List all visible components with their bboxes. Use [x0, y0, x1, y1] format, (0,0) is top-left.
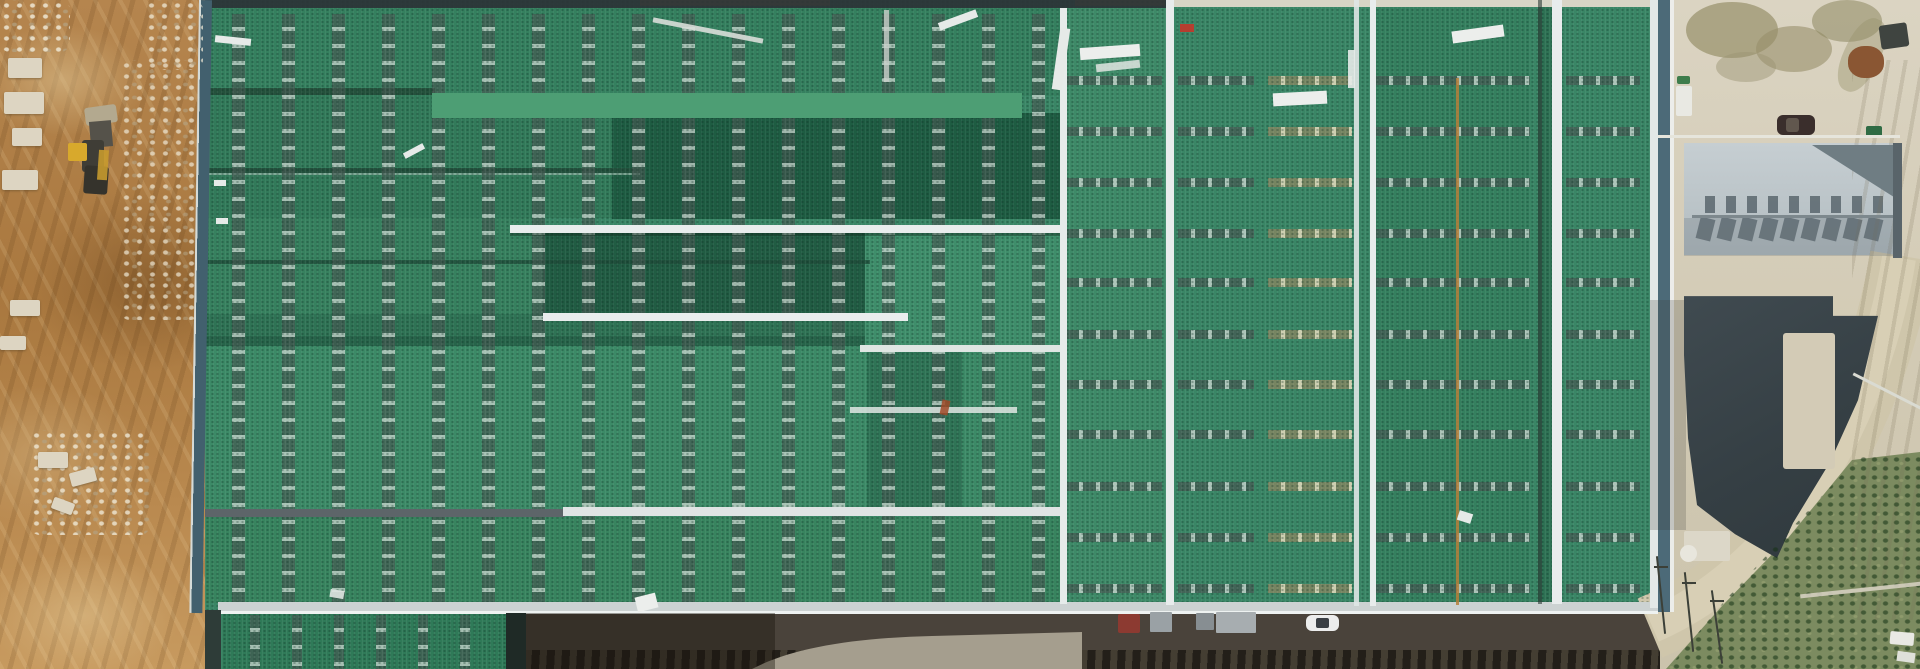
roof-monitor-shadow: [1759, 217, 1779, 242]
concrete-pad: [1684, 531, 1730, 561]
roof-monitor: [1852, 196, 1862, 213]
roof-gray-bar: [205, 509, 565, 517]
cargo-truck-red: [1118, 614, 1140, 633]
utility-pole: [1656, 556, 1666, 634]
pallet-stack: [1196, 613, 1214, 630]
stone-block: [69, 467, 98, 487]
debris-sheet: [1457, 510, 1473, 524]
stone-block: [2, 170, 38, 190]
roof-eave-top-light: [1167, 0, 1655, 7]
roof-seam-vertical: [1370, 0, 1376, 606]
equipment-dark: [1878, 22, 1909, 50]
aerial-photo: [0, 0, 1920, 669]
debris-plank: [403, 143, 425, 159]
rust-pile: [1848, 46, 1884, 78]
debris-plank: [1273, 91, 1328, 107]
gray-roof-ridge: [1692, 215, 1894, 218]
car-white-windshield: [1316, 618, 1329, 628]
roof-step-white: [860, 345, 1063, 352]
debris-plank: [1080, 44, 1141, 60]
roof-monitor-shadow: [1738, 217, 1758, 242]
roof-details-layer: [0, 0, 1920, 669]
building-left-edge-lower: [205, 610, 221, 669]
utility-box-white: [1676, 86, 1692, 116]
roof-monitor-shadow: [1717, 217, 1737, 242]
roof-monitor-shadow: [1864, 217, 1884, 242]
courtyard-concrete: [1783, 333, 1835, 469]
roof-white-bar: [563, 507, 1062, 516]
roof-monitor: [1810, 196, 1820, 213]
roof-monitor-shadow: [1843, 217, 1863, 242]
utility-pole: [1711, 590, 1723, 664]
roof-seam-vertical: [1166, 0, 1174, 605]
roof-monitor: [1747, 196, 1757, 213]
building-left-edge: [189, 0, 212, 613]
roof-monitor-shadow: [1822, 217, 1842, 242]
excavator-arm: [89, 120, 113, 148]
roof-monitor-shadow: [1780, 217, 1800, 242]
debris-sheet: [634, 593, 658, 613]
car-white: [1306, 615, 1339, 631]
debris-plank: [1451, 24, 1504, 43]
roof-walkway: [543, 313, 908, 321]
vegetation-texture: [1660, 455, 1920, 669]
roof-step-white: [850, 407, 1017, 413]
roof-walkway: [510, 225, 1063, 233]
roof-seam-vertical: [1354, 0, 1359, 606]
pipe-rail: [1800, 582, 1920, 599]
car-dark-roof: [1786, 118, 1799, 132]
roof-eave-walkway: [218, 602, 1658, 613]
railing: [1853, 372, 1920, 410]
roof-monitor: [1768, 196, 1778, 213]
roof-eave-top-dark: [205, 0, 1167, 8]
dumpster-green: [1677, 76, 1690, 84]
gray-building-right-wall: [1893, 143, 1902, 258]
building-right-edge: [1658, 0, 1670, 612]
debris-plank: [1052, 28, 1071, 91]
debris-plank: [1096, 60, 1141, 73]
debris-sheet: [329, 589, 344, 599]
roof-walkway-shadow: [510, 233, 1063, 236]
debris-plank: [884, 10, 889, 82]
stone-block: [38, 452, 68, 468]
stone-block: [0, 336, 26, 350]
gray-roof-shadow-triangle: [1812, 145, 1897, 199]
debris-plank: [653, 17, 764, 43]
lower-roof-edge-shadow: [506, 613, 526, 669]
roof-monitor-shadow: [1696, 217, 1716, 242]
dumpster-green: [1866, 126, 1882, 137]
roof-monitor: [1705, 196, 1715, 213]
ground-shadow: [525, 613, 775, 669]
roof-eave-walkway-edge: [218, 611, 1658, 614]
pallet-stack: [1216, 612, 1256, 633]
debris-plank: [214, 180, 226, 186]
yard-shade: [1650, 300, 1686, 530]
gray-roof-lower-shade: [1684, 218, 1897, 256]
roof-monitor: [1873, 196, 1883, 213]
stone-block: [12, 128, 42, 146]
roof-monitor: [1789, 196, 1799, 213]
stone-block: [51, 497, 76, 516]
roof-seam-vertical: [1650, 0, 1658, 608]
concrete-stain: [1829, 12, 1895, 98]
utility-pole-crossarm: [1710, 600, 1724, 602]
charcoal-roof: [1650, 250, 1900, 570]
debris-plank: [215, 35, 252, 46]
excavator-bucket: [84, 104, 118, 126]
excavator-body: [82, 140, 104, 172]
stone-block: [4, 92, 44, 114]
yard-fence: [1658, 135, 1900, 138]
concrete-stain: [1812, 0, 1882, 42]
car-dark: [1777, 115, 1815, 135]
excavator-rear: [83, 165, 109, 195]
vehicle-white: [1896, 651, 1915, 663]
roof-monitor-shadow: [1801, 217, 1821, 242]
roof-seam-vertical: [1060, 8, 1067, 604]
concrete-stain: [1756, 26, 1832, 72]
stone-block: [8, 58, 42, 78]
pallet-stack: [1150, 612, 1172, 632]
roof-seam-vertical: [1552, 0, 1562, 604]
rubble-patch: [0, 0, 70, 52]
debris-red-mark: [1180, 24, 1194, 32]
roof-monitor: [1831, 196, 1841, 213]
rubble-patch: [120, 60, 200, 320]
rubble-patch: [145, 0, 203, 70]
roof-rust-line: [1456, 78, 1459, 605]
stone-block: [10, 300, 40, 316]
rubble-patch: [30, 430, 150, 535]
building-right-edge-line: [1670, 0, 1674, 612]
roof-seam-dark: [1538, 0, 1542, 604]
concrete-stain: [1716, 52, 1776, 82]
tire-tracks: [1852, 60, 1920, 620]
roof-bright-ridge: [432, 93, 1022, 118]
excavator-cab: [68, 143, 87, 161]
storage-tank: [1680, 545, 1697, 562]
debris-plank: [216, 218, 228, 224]
utility-pole: [1684, 572, 1694, 652]
debris-plank: [938, 9, 978, 30]
debris-plank: [1348, 50, 1355, 88]
concrete-stain: [1686, 2, 1778, 58]
utility-pole-crossarm: [1682, 582, 1696, 584]
vehicle-white: [1889, 631, 1914, 646]
roof-monitor: [1726, 196, 1736, 213]
excavator-side: [97, 150, 109, 181]
utility-pole-crossarm: [1654, 566, 1668, 568]
debris-rust-mark: [940, 399, 951, 415]
